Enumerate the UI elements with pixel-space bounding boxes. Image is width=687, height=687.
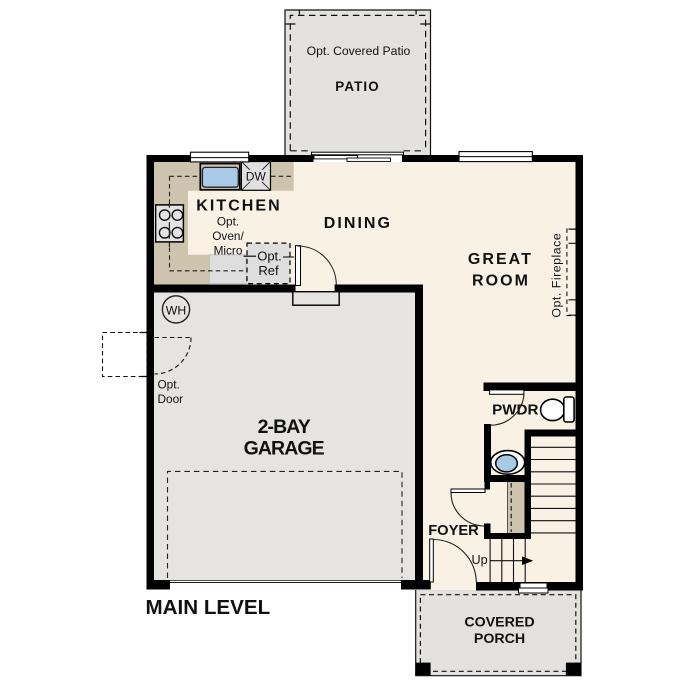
svg-text:DINING: DINING — [324, 215, 392, 232]
svg-text:Opt.: Opt. — [158, 378, 180, 392]
svg-text:MAIN LEVEL: MAIN LEVEL — [146, 596, 271, 619]
svg-text:PATIO: PATIO — [335, 79, 379, 94]
svg-text:Micro: Micro — [214, 243, 243, 257]
svg-text:DW: DW — [246, 169, 267, 183]
svg-text:Up: Up — [472, 553, 488, 567]
svg-text:Oven/: Oven/ — [212, 229, 244, 243]
svg-text:Door: Door — [158, 392, 184, 406]
svg-text:GARAGE: GARAGE — [244, 438, 325, 460]
svg-text:PORCH: PORCH — [474, 631, 525, 647]
svg-text:GREAT: GREAT — [468, 251, 533, 268]
svg-text:KITCHEN: KITCHEN — [196, 198, 281, 215]
svg-text:WH: WH — [166, 303, 187, 317]
svg-text:FOYER: FOYER — [428, 523, 479, 539]
svg-text:COVERED: COVERED — [464, 614, 534, 630]
svg-text:Opt.: Opt. — [257, 248, 282, 263]
svg-text:2-BAY: 2-BAY — [258, 416, 311, 438]
svg-text:Opt. Covered Patio: Opt. Covered Patio — [307, 44, 411, 58]
svg-text:PWDR: PWDR — [492, 401, 538, 418]
svg-text:Opt.: Opt. — [217, 215, 239, 229]
svg-text:ROOM: ROOM — [472, 272, 530, 289]
svg-text:Ref: Ref — [258, 263, 279, 278]
svg-text:Opt. Fireplace: Opt. Fireplace — [550, 233, 564, 318]
